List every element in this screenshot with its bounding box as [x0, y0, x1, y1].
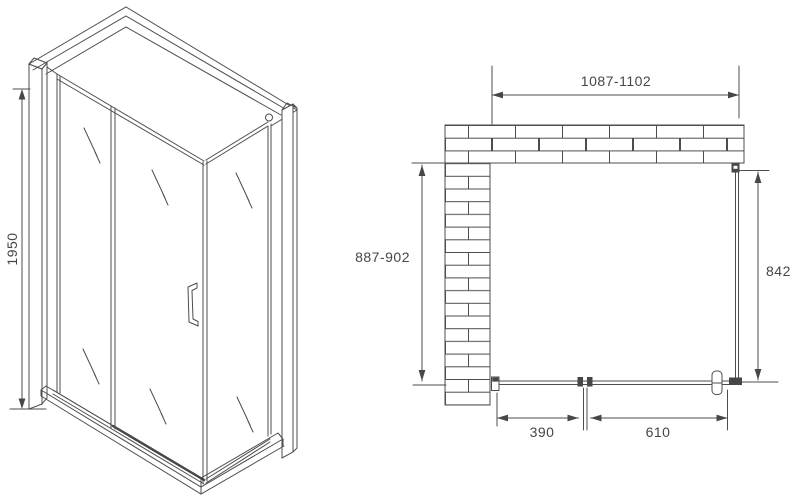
top-frame: [29, 7, 297, 126]
wall-left-bricks: [445, 125, 490, 405]
right-wall-profile: [282, 103, 297, 458]
front-perspective-view: 1950: [4, 7, 297, 494]
left-wall-face: [29, 64, 42, 409]
side-panel-dimension: 842: [737, 171, 791, 383]
arrow-right-icon: [717, 415, 728, 422]
shower-tray: [41, 386, 284, 494]
wall-outline: [445, 125, 744, 405]
fixed-panel-dimension-label: 390: [530, 424, 555, 440]
glass-vertical-edges: [57, 74, 271, 483]
arrow-left-icon: [591, 415, 602, 422]
arrow-right-icon: [728, 92, 739, 99]
depth-dimension-label: 887-902: [355, 249, 410, 265]
arrow-left-icon: [492, 92, 503, 99]
plan-glass-front: [498, 381, 734, 385]
arrow-up-icon: [19, 89, 26, 100]
arrow-down-icon: [19, 399, 26, 410]
technical-drawing-canvas: 1950: [0, 0, 800, 498]
side-panel-wall-bracket-notch: [734, 166, 738, 169]
width-dimension: 1087-1102: [492, 66, 739, 124]
depth-dimension: 887-902: [355, 163, 446, 385]
arrow-down-icon: [419, 370, 426, 381]
width-dimension-label: 1087-1102: [581, 73, 651, 89]
door-dimension-label: 610: [646, 424, 671, 440]
depth-dimension-lines: [412, 163, 446, 385]
glass-top-rails: [57, 74, 268, 165]
top-plan-view: 1087-1102 887-902 842 390: [355, 66, 791, 440]
arrow-up-icon: [419, 165, 426, 176]
shower-enclosure-drawing: 1950: [0, 0, 800, 498]
side-panel-dimension-label: 842: [766, 263, 791, 279]
fixed-panel-dimension: 390: [497, 388, 587, 440]
corner-knob: [266, 114, 273, 121]
arrow-up-icon: [755, 172, 762, 183]
height-dimension-label: 1950: [4, 232, 20, 265]
glass-shine-marks: [83, 128, 253, 432]
walls: [445, 125, 744, 405]
arrow-down-icon: [755, 369, 762, 380]
panel-hinge-right: [587, 377, 593, 387]
arrow-left-icon: [497, 415, 508, 422]
right-wall-face: [282, 104, 293, 458]
door-dimension: 610: [591, 390, 728, 440]
wall-profile-bracket-cap: [492, 378, 498, 382]
left-wall-profile: [29, 58, 47, 409]
plan-glass-side: [736, 173, 739, 378]
door-handle: [188, 283, 198, 326]
corner-bracket: [729, 378, 742, 386]
fittings: [492, 164, 743, 395]
drawing-root: 1950: [4, 7, 791, 494]
left-wall-side: [42, 63, 47, 404]
arrow-right-icon: [568, 415, 579, 422]
panel-hinge-left: [578, 377, 584, 387]
